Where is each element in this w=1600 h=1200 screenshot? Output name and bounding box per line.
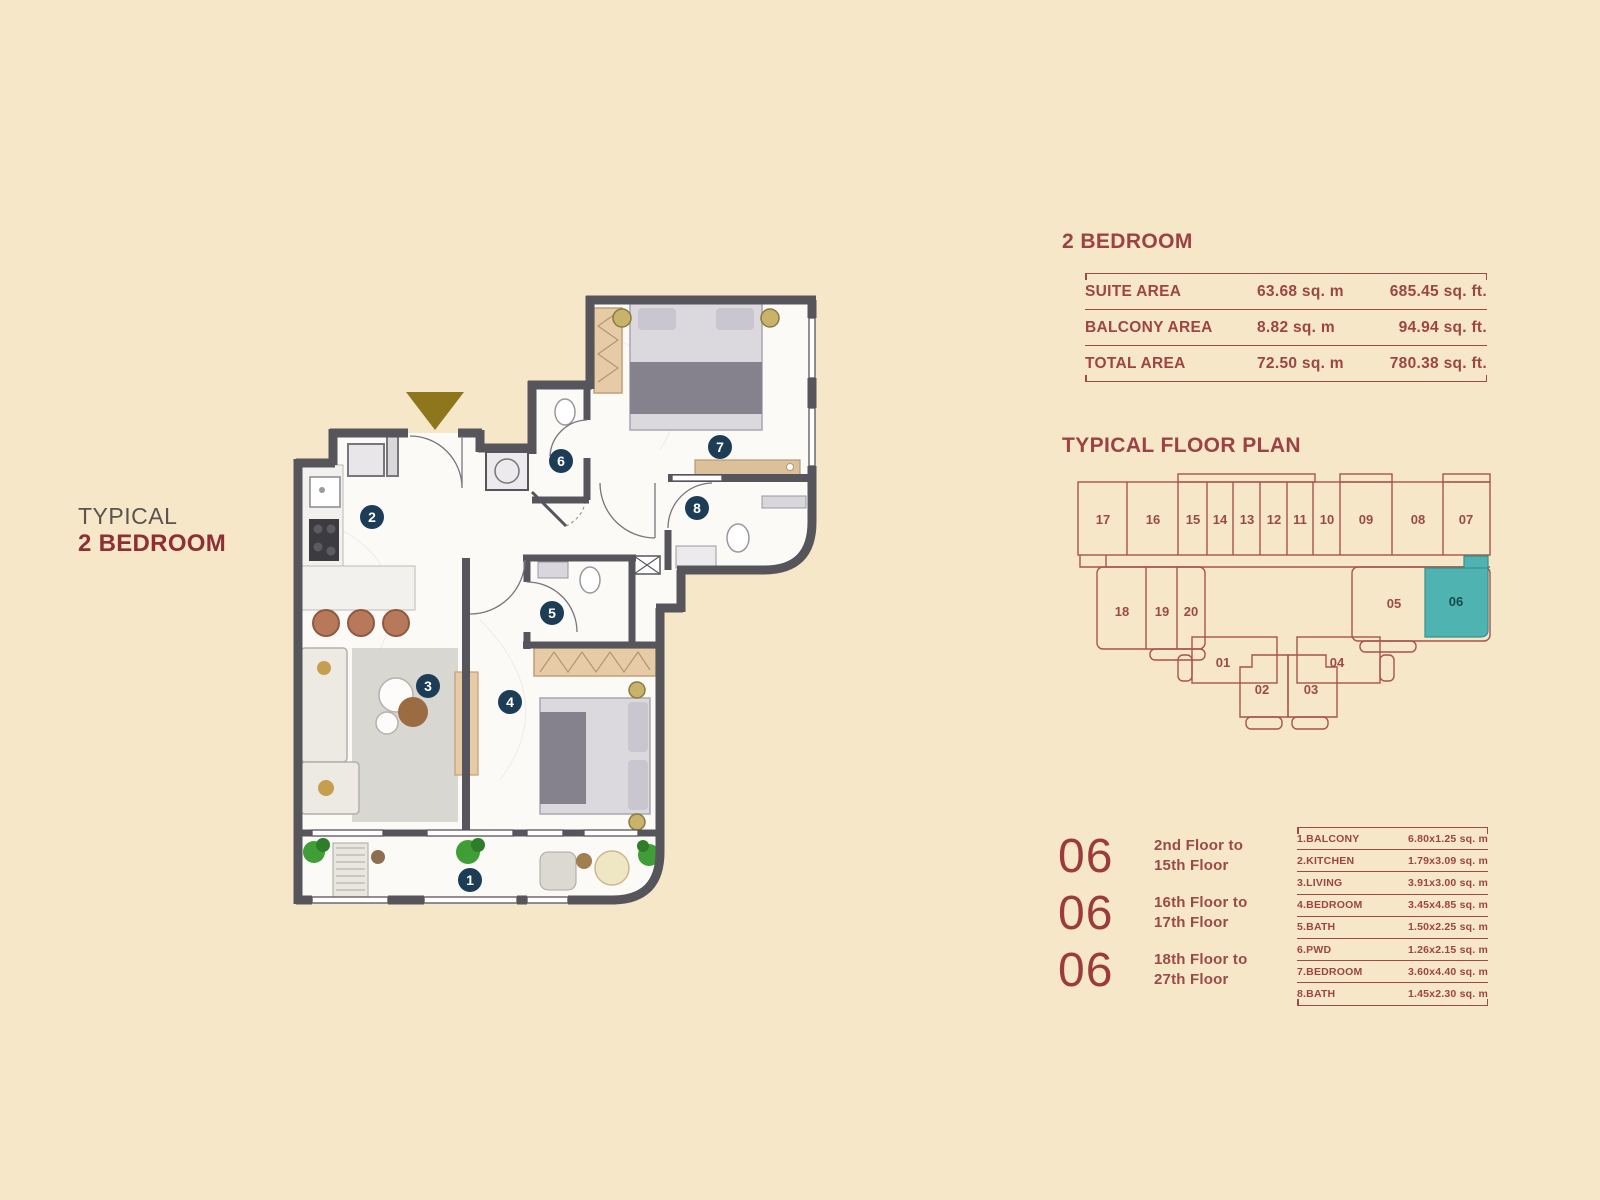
svg-text:3: 3 (424, 678, 432, 694)
linen-closet (634, 556, 660, 574)
svg-text:1: 1 (466, 872, 474, 888)
plan-caption-line2: 2 BEDROOM (78, 530, 226, 557)
table-row: 5.BATH 1.50x2.25 sq. m (1297, 916, 1488, 938)
floor-range-line1: 2nd Floor to (1154, 836, 1243, 856)
floor-range-line2: 15th Floor (1154, 856, 1243, 876)
keyplan-unit-label: 09 (1359, 512, 1373, 527)
plan-caption-line1: TYPICAL (78, 503, 226, 530)
dim-value: 3.91x3.00 sq. m (1408, 877, 1488, 889)
dim-label: 1.BALCONY (1297, 833, 1359, 845)
floor-range-row: 06 16th Floor to 17th Floor (1058, 889, 1278, 937)
room-badge-7: 7 (708, 435, 732, 459)
table-row: SUITE AREA 63.68 sq. m 685.45 sq. ft. (1085, 274, 1487, 309)
floorplan-drawing: 1 2 3 4 5 6 7 8 (270, 265, 845, 920)
dim-value: 3.60x4.40 sq. m (1408, 966, 1488, 978)
keyplan-unit-label-highlighted: 06 (1449, 594, 1463, 609)
dim-label: 7.BEDROOM (1297, 966, 1362, 978)
keyplan-unit-label: 19 (1155, 604, 1169, 619)
keyplan-unit-label: 15 (1186, 512, 1200, 527)
keyplan-unit-label: 03 (1304, 682, 1318, 697)
table-row: 4.BEDROOM 3.45x4.85 sq. m (1297, 894, 1488, 916)
svg-text:2: 2 (368, 509, 376, 525)
area-row-label: BALCONY AREA (1085, 319, 1257, 337)
dresser (695, 460, 800, 475)
bed-2 (540, 682, 650, 830)
floor-range-line1: 16th Floor to (1154, 893, 1247, 913)
svg-text:8: 8 (693, 500, 701, 516)
dim-value: 3.45x4.85 sq. m (1408, 899, 1488, 911)
unit-number: 06 (1058, 829, 1136, 884)
room-badge-2: 2 (360, 505, 384, 529)
keyplan-unit-label: 08 (1411, 512, 1425, 527)
room-badge-6: 6 (549, 449, 573, 473)
unit-floor-ranges: 06 2nd Floor to 15th Floor 06 16th Floor… (1058, 832, 1278, 1003)
unit-number: 06 (1058, 886, 1136, 941)
keyplan-unit-label: 18 (1115, 604, 1129, 619)
kitchen-counter (300, 566, 415, 610)
table-row: 6.PWD 1.26x2.15 sq. m (1297, 938, 1488, 960)
keyplan-unit-label: 20 (1184, 604, 1198, 619)
room-badge-4: 4 (498, 690, 522, 714)
dim-value: 1.45x2.30 sq. m (1408, 988, 1488, 1000)
table-row: TOTAL AREA 72.50 sq. m 780.38 sq. ft. (1085, 345, 1487, 381)
floor-range-line1: 18th Floor to (1154, 950, 1247, 970)
bed-1 (613, 302, 779, 430)
keyplan-unit-label: 12 (1267, 512, 1281, 527)
keyplan-unit-label: 02 (1255, 682, 1269, 697)
floor-range-row: 06 18th Floor to 27th Floor (1058, 946, 1278, 994)
floor-range-line2: 27th Floor (1154, 970, 1247, 990)
dim-label: 5.BATH (1297, 921, 1335, 933)
keyplan-unit-label: 14 (1213, 512, 1228, 527)
room-badge-1: 1 (458, 868, 482, 892)
keyplan-unit-label: 13 (1240, 512, 1254, 527)
stove (309, 519, 339, 561)
unit-number: 06 (1058, 943, 1136, 998)
table-row: 8.BATH 1.45x2.30 sq. m (1297, 982, 1488, 1004)
dim-label: 6.PWD (1297, 944, 1331, 956)
dim-value: 1.79x3.09 sq. m (1408, 855, 1488, 867)
table-row: 7.BEDROOM 3.60x4.40 sq. m (1297, 960, 1488, 982)
table-row: 1.BALCONY 6.80x1.25 sq. m (1297, 828, 1488, 849)
keyplan-unit-label: 10 (1320, 512, 1334, 527)
plan-caption: TYPICAL 2 BEDROOM (78, 503, 226, 557)
table-row: 3.LIVING 3.91x3.00 sq. m (1297, 871, 1488, 893)
svg-text:5: 5 (548, 605, 556, 621)
brochure-page: TYPICAL 2 BEDROOM (0, 0, 1600, 1200)
pwd-toilet (555, 399, 575, 425)
keyplan-drawing: 17 16 15 14 13 12 11 10 09 08 07 18 19 2… (1050, 455, 1500, 745)
dim-value: 1.50x2.25 sq. m (1408, 921, 1488, 933)
svg-text:7: 7 (716, 439, 724, 455)
table-row: BALCONY AREA 8.82 sq. m 94.94 sq. ft. (1085, 309, 1487, 345)
area-row-metric: 72.50 sq. m (1257, 355, 1379, 373)
room-dimensions-table: 1.BALCONY 6.80x1.25 sq. m 2.KITCHEN 1.79… (1297, 827, 1488, 1006)
dim-value: 1.26x2.15 sq. m (1408, 944, 1488, 956)
area-panel-title: 2 BEDROOM (1062, 230, 1193, 254)
floor-range-line2: 17th Floor (1154, 913, 1247, 933)
keyplan-unit-label: 16 (1146, 512, 1160, 527)
room-badge-3: 3 (416, 674, 440, 698)
room-badge-5: 5 (540, 601, 564, 625)
area-row-metric: 8.82 sq. m (1257, 319, 1379, 337)
room-badge-8: 8 (685, 496, 709, 520)
keyplan-unit-label: 04 (1330, 655, 1345, 670)
living-rug (352, 648, 458, 822)
entry-arrow-icon (406, 392, 464, 430)
floor-range-row: 06 2nd Floor to 15th Floor (1058, 832, 1278, 880)
keyplan-unit-label: 17 (1096, 512, 1110, 527)
dim-label: 3.LIVING (1297, 877, 1342, 889)
keyplan-unit-label: 01 (1216, 655, 1230, 670)
area-row-metric: 63.68 sq. m (1257, 283, 1379, 301)
dim-label: 2.KITCHEN (1297, 855, 1354, 867)
dim-label: 4.BEDROOM (1297, 899, 1362, 911)
keyplan-unit-label: 07 (1459, 512, 1473, 527)
svg-text:6: 6 (557, 453, 565, 469)
counter-stools (313, 610, 409, 636)
dim-label: 8.BATH (1297, 988, 1335, 1000)
area-row-label: TOTAL AREA (1085, 355, 1257, 373)
table-row: 2.KITCHEN 1.79x3.09 sq. m (1297, 849, 1488, 871)
kitchen-sink (310, 477, 340, 507)
keyplan-unit-label: 05 (1387, 596, 1401, 611)
area-table: SUITE AREA 63.68 sq. m 685.45 sq. ft. BA… (1085, 273, 1487, 382)
bedroom4-wardrobe (534, 648, 656, 676)
dim-value: 6.80x1.25 sq. m (1408, 833, 1488, 845)
area-row-label: SUITE AREA (1085, 283, 1257, 301)
area-row-imperial: 780.38 sq. ft. (1379, 355, 1487, 373)
fridge (348, 444, 384, 476)
area-row-imperial: 94.94 sq. ft. (1379, 319, 1487, 337)
area-row-imperial: 685.45 sq. ft. (1379, 283, 1487, 301)
svg-text:4: 4 (506, 694, 514, 710)
keyplan-unit-label: 11 (1293, 512, 1307, 527)
